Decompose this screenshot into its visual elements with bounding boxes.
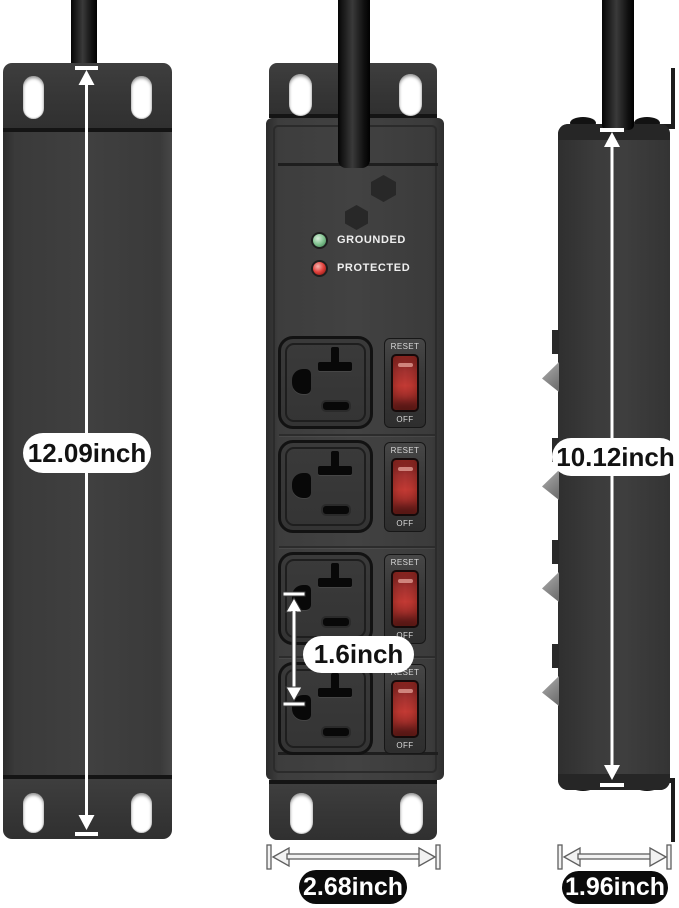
rocker-switch bbox=[391, 680, 419, 738]
mounting-hole bbox=[399, 74, 422, 116]
power-outlet bbox=[278, 552, 373, 645]
back-height-label: 12.09inch bbox=[23, 433, 151, 473]
rocker-switch bbox=[391, 458, 419, 516]
front-width-label: 2.68inch bbox=[299, 870, 407, 904]
mounting-bracket bbox=[269, 780, 437, 840]
switch-profile-notch bbox=[552, 540, 559, 564]
outlet-module: RESET OFF bbox=[278, 336, 426, 431]
switch-profile-notch bbox=[552, 330, 559, 354]
power-cord bbox=[71, 0, 97, 72]
mounting-bracket bbox=[3, 63, 172, 132]
outlet-t-slot bbox=[318, 466, 352, 475]
mounting-hole bbox=[400, 793, 423, 834]
protected-label: PROTECTED bbox=[337, 262, 410, 274]
panel-seam bbox=[279, 434, 435, 436]
side-height-label: 10.12inch bbox=[552, 438, 679, 476]
rocker-highlight bbox=[398, 689, 413, 693]
product-dimension-image: GROUNDED PROTECTED RESET OFF bbox=[0, 0, 679, 908]
outlet-d-slot bbox=[292, 473, 311, 498]
switch-profile-bump bbox=[542, 470, 559, 500]
front-width-arrow bbox=[267, 845, 440, 869]
reset-switch: RESET OFF bbox=[384, 554, 426, 644]
switch-profile-bump bbox=[542, 676, 559, 706]
power-cord bbox=[338, 0, 370, 168]
panel-seam bbox=[279, 546, 435, 548]
off-label: OFF bbox=[396, 741, 413, 750]
outlet-t-slot bbox=[318, 362, 352, 371]
outlet-d-slot bbox=[292, 585, 311, 610]
rocker-highlight bbox=[398, 467, 413, 471]
mounting-hole bbox=[289, 74, 312, 116]
side-width-arrow bbox=[558, 845, 671, 869]
grounded-led-icon bbox=[311, 232, 328, 249]
outlet-t-slot bbox=[318, 578, 352, 587]
reset-label: RESET bbox=[391, 446, 420, 455]
mounting-hole bbox=[131, 793, 152, 833]
outlet-spacing-label: 1.6inch bbox=[303, 636, 414, 673]
mounting-hole bbox=[290, 793, 313, 834]
reset-switch: RESET OFF bbox=[384, 664, 426, 754]
switch-profile-notch bbox=[552, 644, 559, 668]
outlet-bottom-slot bbox=[321, 726, 351, 738]
rocker-switch bbox=[391, 570, 419, 628]
off-label: OFF bbox=[396, 519, 413, 528]
mounting-hole bbox=[131, 76, 152, 119]
protected-led-icon bbox=[311, 260, 328, 277]
off-label: OFF bbox=[396, 415, 413, 424]
power-outlet bbox=[278, 440, 373, 533]
outlet-bottom-slot bbox=[321, 504, 351, 516]
grounded-label: GROUNDED bbox=[337, 234, 406, 246]
rocker-highlight bbox=[398, 579, 413, 583]
reset-label: RESET bbox=[391, 558, 420, 567]
outlet-d-slot bbox=[292, 369, 311, 394]
mounting-hole bbox=[23, 76, 44, 119]
outlet-bottom-slot bbox=[321, 400, 351, 412]
rocker-switch bbox=[391, 354, 419, 412]
reset-switch: RESET OFF bbox=[384, 338, 426, 428]
outlet-module: RESET OFF bbox=[278, 662, 426, 757]
mounting-hole bbox=[23, 793, 44, 833]
side-width-label: 1.96inch bbox=[562, 871, 668, 904]
outlet-module: RESET OFF bbox=[278, 440, 426, 535]
outlet-module: RESET OFF bbox=[278, 552, 426, 647]
rocker-highlight bbox=[398, 363, 413, 367]
power-outlet bbox=[278, 662, 373, 755]
switch-profile-bump bbox=[542, 362, 559, 392]
outlet-t-slot bbox=[318, 688, 352, 697]
switch-profile-bump bbox=[542, 572, 559, 602]
reset-label: RESET bbox=[391, 342, 420, 351]
reset-switch: RESET OFF bbox=[384, 442, 426, 532]
mounting-bracket bbox=[3, 775, 172, 839]
bracket-flange bbox=[671, 68, 675, 128]
outlet-d-slot bbox=[292, 695, 311, 720]
bracket-flange bbox=[671, 778, 675, 842]
power-cord bbox=[602, 0, 634, 130]
outlet-bottom-slot bbox=[321, 616, 351, 628]
power-outlet bbox=[278, 336, 373, 429]
